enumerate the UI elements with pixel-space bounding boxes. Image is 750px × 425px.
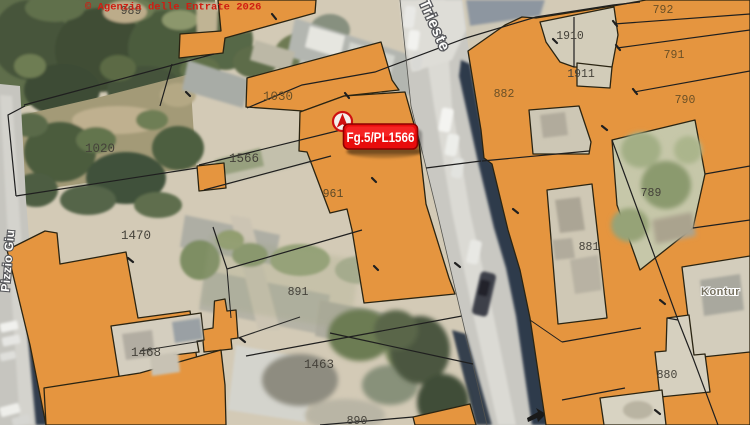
svg-text:881: 881 xyxy=(579,241,600,254)
svg-text:789: 789 xyxy=(641,187,662,200)
svg-text:© Agenzia delle Entrate 2026: © Agenzia delle Entrate 2026 xyxy=(85,2,261,14)
svg-text:1910: 1910 xyxy=(556,30,584,43)
svg-text:882: 882 xyxy=(494,88,515,101)
svg-text:Fg.5/PL1566: Fg.5/PL1566 xyxy=(347,130,415,145)
svg-text:1566: 1566 xyxy=(229,152,259,166)
svg-text:Kontur: Kontur xyxy=(701,286,740,298)
svg-text:961: 961 xyxy=(323,188,344,201)
svg-text:791: 791 xyxy=(664,49,685,62)
svg-text:1020: 1020 xyxy=(85,142,115,156)
svg-text:1468: 1468 xyxy=(131,346,161,360)
svg-text:1470: 1470 xyxy=(121,229,151,243)
svg-text:880: 880 xyxy=(657,369,678,382)
svg-text:890: 890 xyxy=(347,415,368,425)
svg-text:891: 891 xyxy=(288,286,309,299)
svg-text:1030: 1030 xyxy=(263,90,293,104)
svg-text:1911: 1911 xyxy=(567,68,595,81)
svg-text:790: 790 xyxy=(675,94,696,107)
svg-text:792: 792 xyxy=(653,4,674,17)
svg-text:1463: 1463 xyxy=(304,358,334,372)
